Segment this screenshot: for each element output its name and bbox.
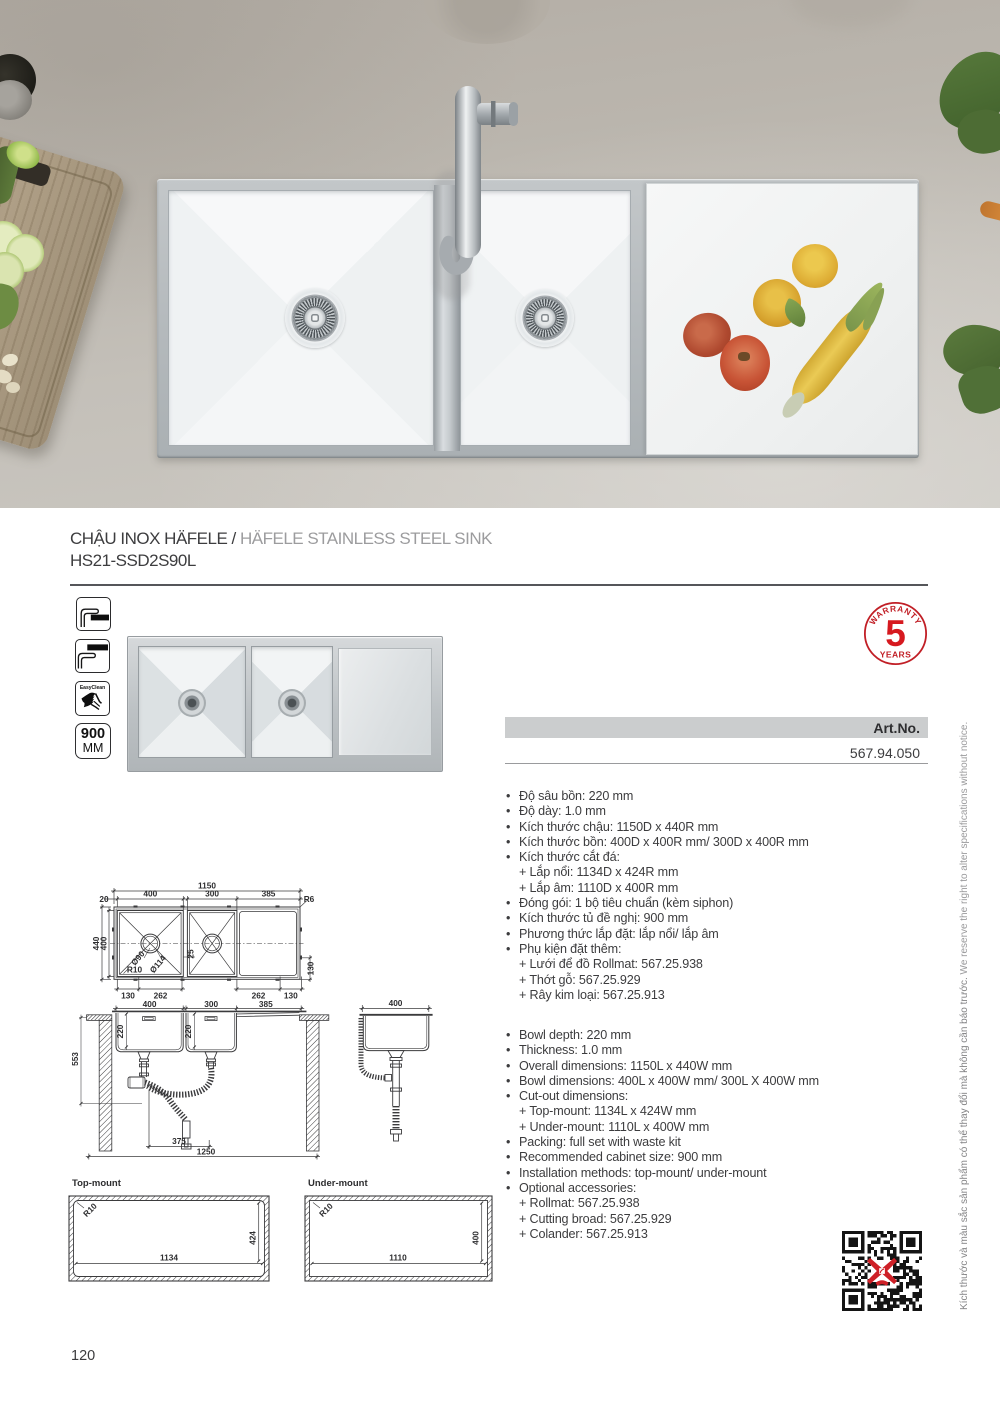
svg-text:20: 20: [99, 894, 109, 904]
svg-text:385: 385: [259, 999, 273, 1009]
svg-text:400: 400: [143, 999, 157, 1009]
svg-text:130: 130: [306, 961, 316, 975]
svg-text:375: 375: [172, 1136, 186, 1146]
svg-text:424: 424: [248, 1231, 258, 1245]
svg-text:25: 25: [186, 949, 196, 959]
svg-text:553: 553: [70, 1052, 80, 1066]
svg-text:400: 400: [389, 998, 403, 1008]
svg-text:R6: R6: [304, 894, 315, 904]
svg-text:300: 300: [205, 888, 219, 898]
svg-text:220: 220: [115, 1024, 125, 1038]
svg-text:300: 300: [204, 999, 218, 1009]
svg-text:1110: 1110: [389, 1253, 407, 1263]
svg-text:1250: 1250: [197, 1147, 216, 1157]
svg-text:400: 400: [471, 1231, 481, 1245]
svg-text:400: 400: [99, 936, 109, 950]
svg-text:5: 5: [885, 613, 906, 654]
svg-text:400: 400: [143, 888, 157, 898]
svg-text:130: 130: [284, 991, 298, 1001]
svg-text:1134: 1134: [160, 1253, 178, 1263]
svg-text:Top-mount: Top-mount: [72, 1178, 122, 1189]
svg-text:YEARS: YEARS: [880, 650, 912, 660]
svg-text:220: 220: [183, 1024, 193, 1038]
svg-text:385: 385: [262, 888, 276, 898]
svg-text:Ø114: Ø114: [147, 953, 168, 975]
svg-text:130: 130: [121, 991, 135, 1001]
svg-text:R10: R10: [127, 965, 143, 975]
svg-text:Under-mount: Under-mount: [308, 1178, 368, 1189]
